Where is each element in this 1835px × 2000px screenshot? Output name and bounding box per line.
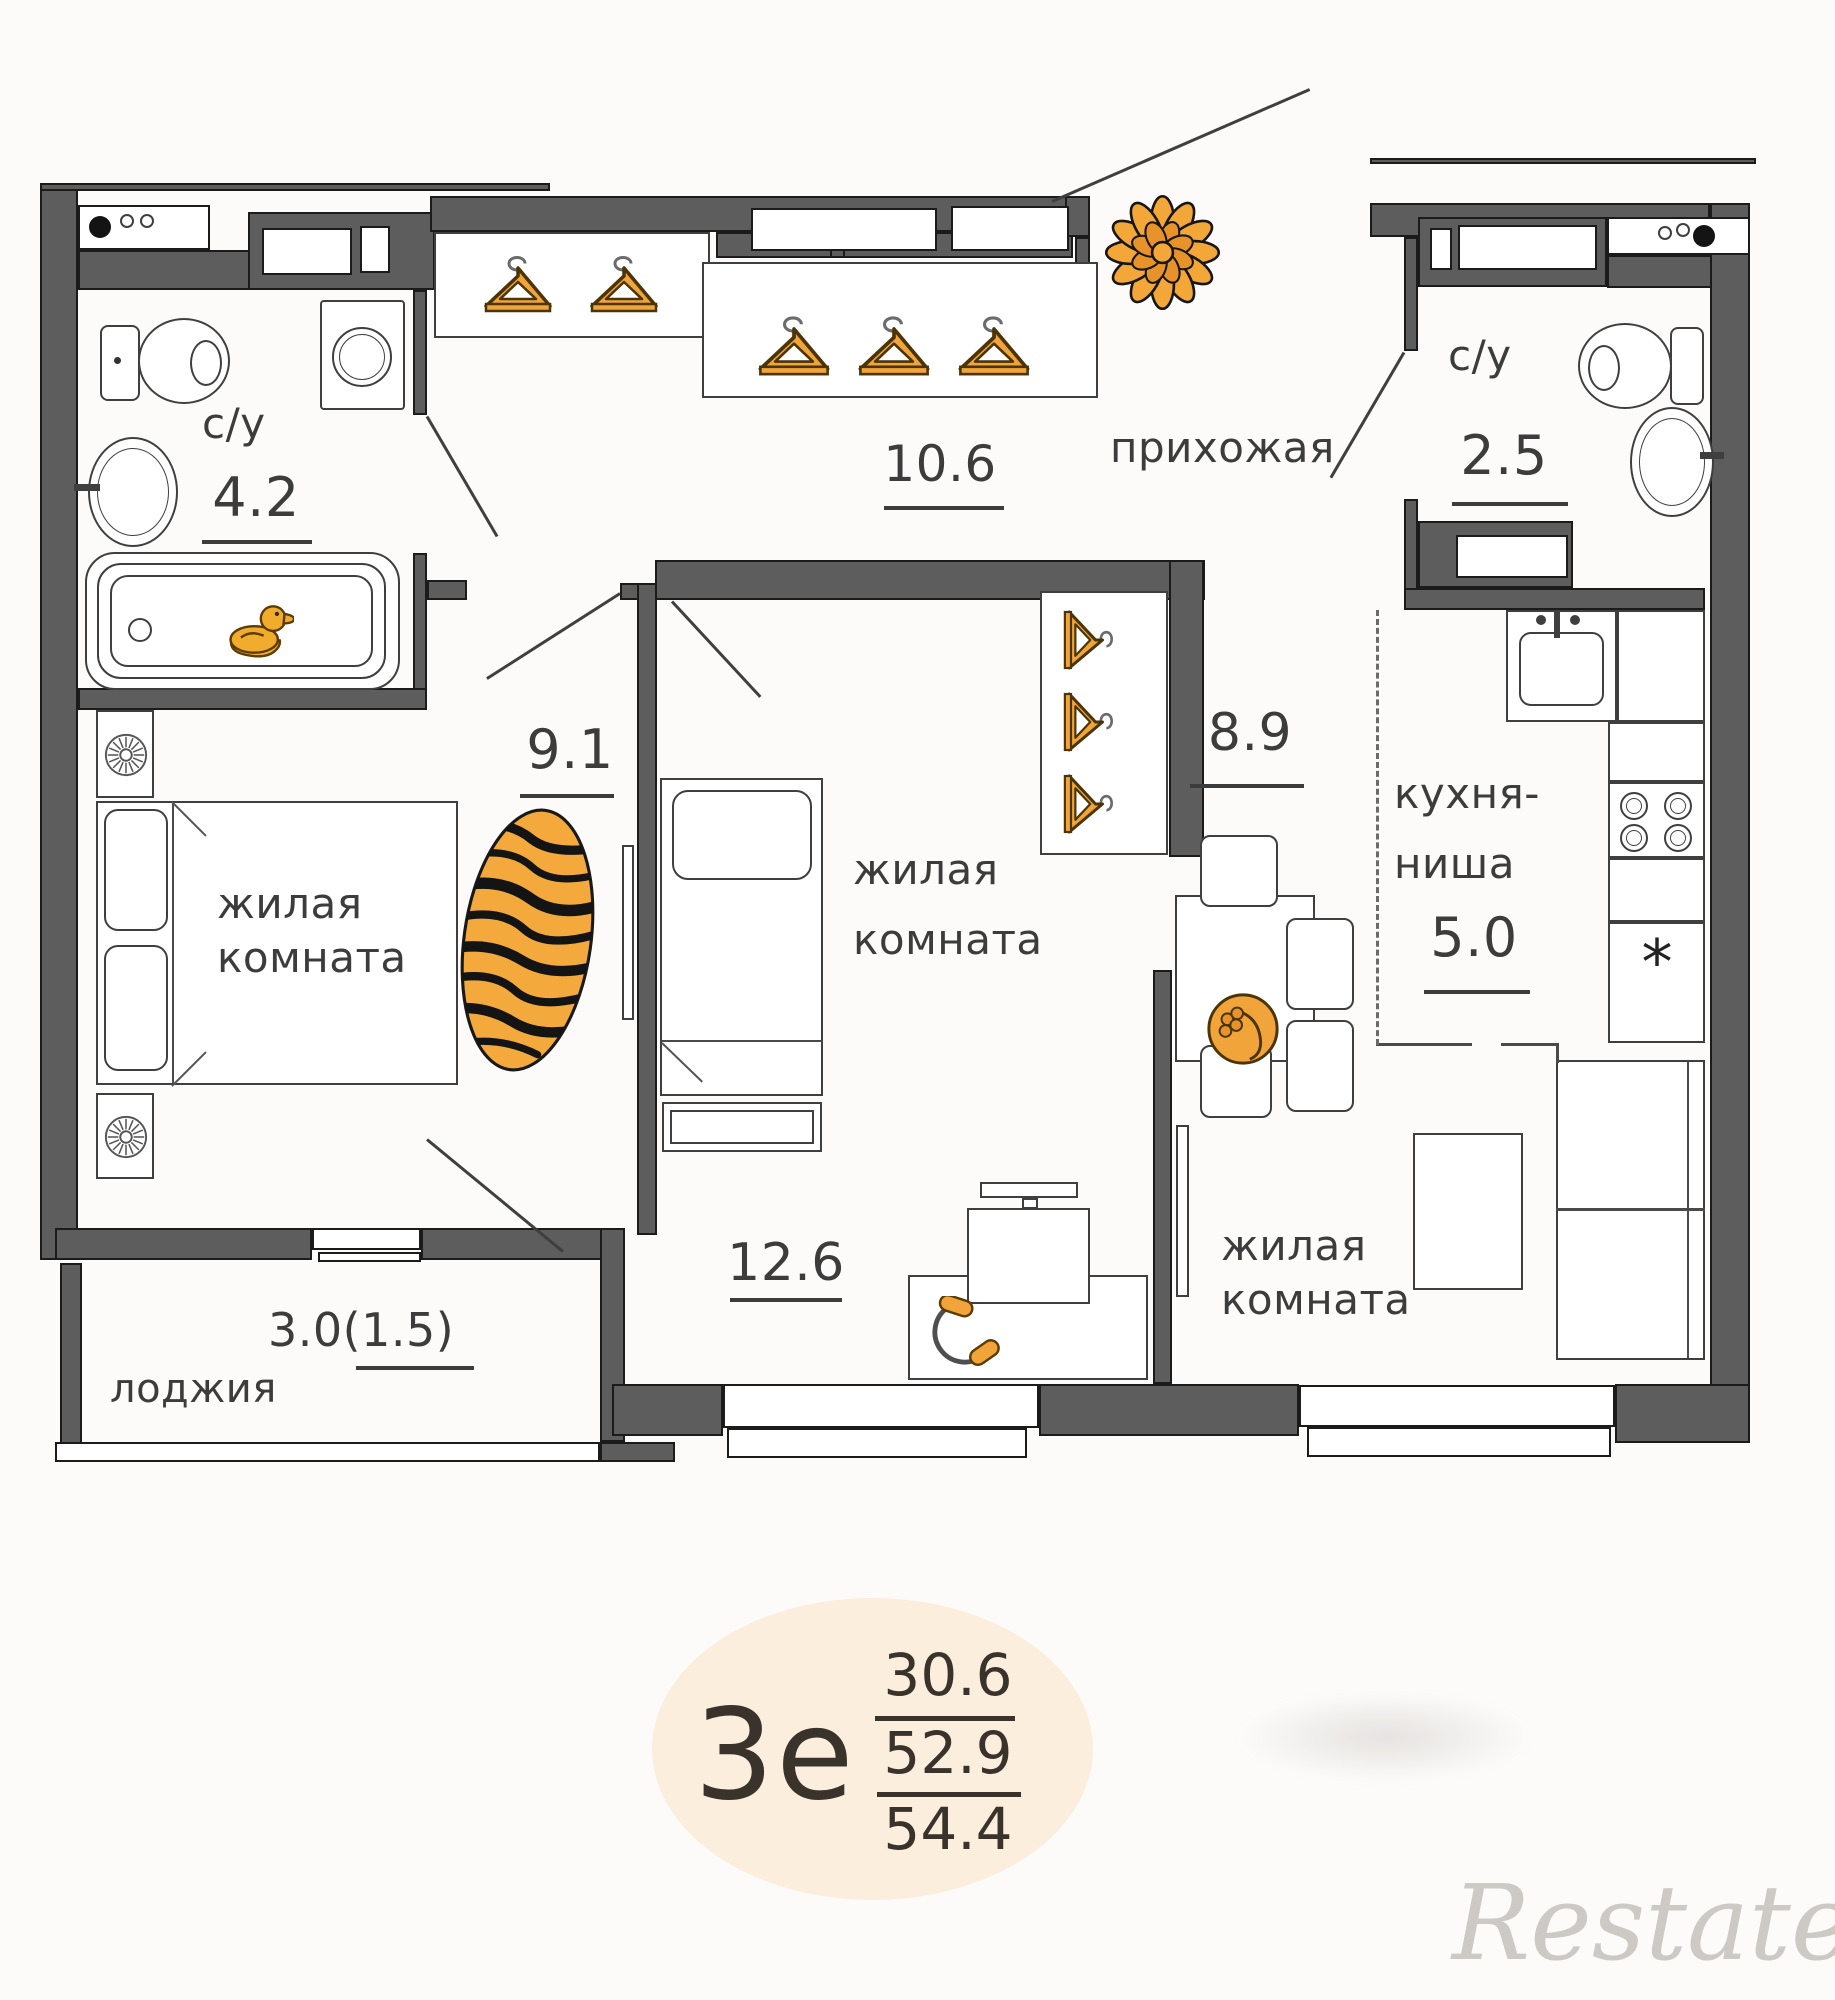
dining-chair [1200, 835, 1278, 907]
wall [427, 580, 467, 600]
area-underline [1452, 502, 1568, 506]
vent-circle [140, 214, 154, 228]
headphones-chair-icon [918, 1296, 1006, 1374]
pillow [672, 790, 812, 880]
bathroom-main-area: 4.2 [196, 470, 316, 527]
fridge-asterisk: * [1626, 926, 1688, 996]
wall-niche [951, 206, 1069, 251]
rubber-duck-icon [222, 598, 294, 662]
kitchen-counter [1617, 610, 1705, 722]
hanger-icon [752, 310, 836, 390]
room-middle-area: 12.6 [724, 1236, 848, 1291]
shaft-opening [1430, 228, 1452, 270]
detail-line [1376, 1043, 1472, 1046]
detail-line [1556, 1208, 1705, 1211]
faucet [1554, 612, 1560, 638]
burner-inner [1626, 830, 1642, 846]
detail-line [172, 803, 174, 1083]
area-underline [202, 540, 312, 544]
badge-total-area: 54.4 [867, 1800, 1029, 1858]
wall [1615, 1384, 1750, 1443]
wall [413, 553, 427, 707]
badge-living-area: 30.6 [867, 1646, 1029, 1704]
badge-usable-area: 52.9 [867, 1724, 1029, 1782]
room-middle-door-swing [671, 600, 762, 697]
toilet-bowl-inner [190, 340, 222, 386]
wall [637, 583, 657, 1235]
area-underline [1190, 784, 1304, 788]
window [1299, 1385, 1615, 1427]
bathroom-sink-inner [1639, 418, 1705, 506]
pillow [104, 945, 168, 1071]
toilet-tank [100, 325, 140, 401]
bed-bench-inner [670, 1110, 814, 1144]
wall [1404, 588, 1705, 610]
hanger-icon [584, 256, 664, 320]
room-right-label-1: жилая [1221, 1224, 1366, 1268]
wall [612, 1384, 723, 1436]
bedroom-label-1: жилая [217, 882, 362, 926]
faucet [1700, 452, 1724, 459]
hanger-icon [1051, 605, 1119, 675]
kitchen-label-2: ниша [1394, 842, 1515, 886]
flower-icon [1100, 190, 1225, 315]
vent-circle [120, 214, 134, 228]
area-underline [730, 1298, 842, 1302]
wall [413, 290, 427, 415]
toilet-button [114, 357, 121, 364]
faucet-knob [1570, 615, 1580, 625]
bed-room-right [1413, 1133, 1523, 1290]
bathroom-sink-inner [97, 448, 169, 536]
dining-chair [1286, 1020, 1354, 1112]
entrance-door-swing [1051, 88, 1310, 203]
shaft-opening [1456, 535, 1568, 578]
wall [55, 1228, 312, 1260]
window-sill [1307, 1427, 1611, 1457]
kitchen-label-1: кухня- [1394, 772, 1540, 816]
detail-line [1687, 1062, 1689, 1358]
faucet [74, 484, 100, 491]
wall [40, 183, 550, 191]
wall [600, 1442, 675, 1462]
kitchen-area: 5.0 [1420, 910, 1528, 967]
wall [1370, 158, 1756, 164]
bathroom-guest-door-swing [1330, 352, 1406, 479]
hanger-icon [852, 310, 936, 390]
bedroom-label-2: комната [217, 936, 407, 980]
vent-dot [89, 216, 111, 238]
wall [1710, 203, 1750, 1443]
monitor-stand [1022, 1198, 1038, 1209]
shaft-opening [360, 226, 390, 273]
wall-niche [751, 208, 937, 251]
floor-plan: с/у 4.2 10.6 прихожая с/у 2.5 жилая комн… [0, 0, 1835, 2000]
bathroom-main-door-swing [426, 416, 499, 538]
wall-mirror-room-right [1176, 1125, 1189, 1297]
vent-circle [1658, 226, 1672, 240]
burner-inner [1670, 798, 1686, 814]
wall [1153, 970, 1172, 1384]
tiger-rug-icon [442, 797, 613, 1083]
closet-hallway-left [434, 232, 710, 338]
shaft-opening [1458, 225, 1597, 270]
washer-drum-inner [339, 334, 385, 380]
loggia-label: лоджия [110, 1368, 277, 1410]
monitor [980, 1182, 1078, 1198]
toilet-bowl-inner [1588, 345, 1620, 391]
kitchen-counter [1608, 858, 1705, 922]
area-underline [1424, 990, 1530, 994]
detail-line [662, 1040, 822, 1042]
balcony-door-step [318, 1252, 421, 1262]
kitchen-sink-basin [1519, 632, 1604, 706]
window [723, 1384, 1039, 1428]
lamp-icon [103, 1114, 149, 1160]
hallway-area: 10.6 [874, 438, 1006, 491]
room-right-area: 8.9 [1194, 706, 1306, 761]
loggia-area: 3.0(1.5) [268, 1306, 454, 1354]
bathtub-drain [128, 618, 152, 642]
vent-dot [1693, 225, 1715, 247]
bathroom-guest-area: 2.5 [1446, 428, 1562, 485]
hallway-label: прихожая [1110, 426, 1335, 470]
wall-mirror-bedroom [622, 845, 634, 1020]
kitchen-counter [1608, 722, 1705, 782]
hanger-icon [952, 310, 1036, 390]
balcony-door [312, 1228, 421, 1250]
wall [1404, 237, 1418, 351]
bedroom-door-swing [486, 592, 621, 680]
lamp-icon [103, 732, 149, 778]
kitchen-niche-boundary [1376, 610, 1379, 1045]
area-underline [520, 794, 614, 798]
room-right-label-2: комната [1221, 1278, 1411, 1322]
area-underline [884, 506, 1004, 510]
desk [967, 1208, 1090, 1304]
room-middle-label-1: жилая [853, 848, 998, 892]
room-middle-label-2: комната [853, 918, 1043, 962]
wall [60, 1263, 82, 1445]
detail-line [1501, 1043, 1556, 1046]
pillow [104, 809, 168, 931]
hanger-icon [1051, 687, 1119, 757]
wall [78, 688, 427, 710]
hanger-icon [478, 256, 558, 320]
faucet-knob [1536, 615, 1546, 625]
dining-chair [1286, 918, 1354, 1010]
loggia-glazing [55, 1442, 600, 1462]
wall [421, 1228, 612, 1260]
burner-inner [1626, 798, 1642, 814]
vent-circle [1676, 223, 1690, 237]
bathroom-guest-label: с/у [1448, 334, 1512, 378]
area-underline [356, 1366, 474, 1370]
unit-type: 3е [694, 1692, 856, 1818]
agency-watermark: Restate [1452, 1862, 1835, 1984]
detail-line [1556, 1043, 1559, 1063]
toilet-tank [1670, 327, 1704, 405]
faint-watermark-smudge [1235, 1692, 1535, 1782]
hanger-icon [1051, 769, 1119, 839]
fruit-bowl-icon [1204, 990, 1282, 1068]
window-sill [727, 1428, 1027, 1458]
bathroom-main-label: с/у [202, 402, 266, 446]
wall [1039, 1384, 1299, 1436]
bedroom-area: 9.1 [524, 722, 616, 779]
burner-inner [1670, 830, 1686, 846]
wall [40, 183, 78, 1260]
shaft-opening [262, 228, 352, 275]
